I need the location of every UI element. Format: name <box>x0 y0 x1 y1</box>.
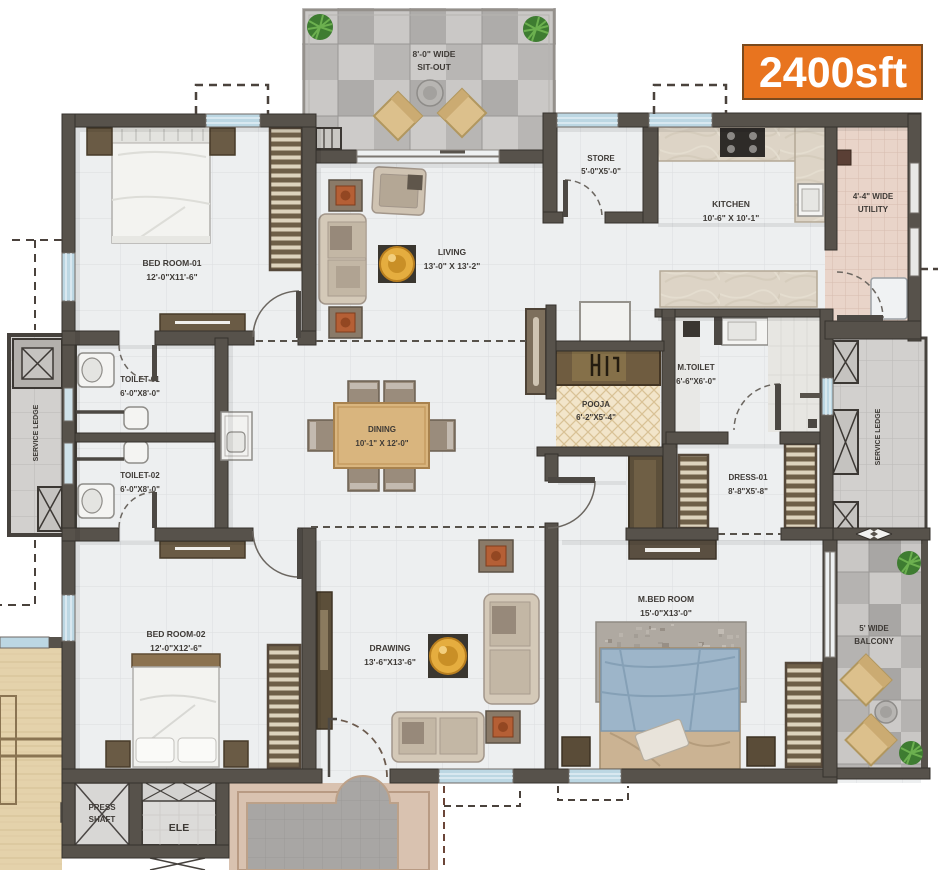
svg-text:DRAWING: DRAWING <box>369 643 410 653</box>
svg-text:M.BED ROOM: M.BED ROOM <box>638 594 694 604</box>
svg-text:13'-6"X13'-6": 13'-6"X13'-6" <box>364 657 416 667</box>
svg-text:LIVING: LIVING <box>438 247 467 257</box>
svg-text:5' WIDE: 5' WIDE <box>859 624 889 633</box>
svg-text:4'-4" WIDE: 4'-4" WIDE <box>853 192 894 201</box>
svg-text:BED ROOM-02: BED ROOM-02 <box>146 629 205 639</box>
svg-text:8'-8"X5'-8": 8'-8"X5'-8" <box>728 487 768 496</box>
svg-text:SERVICE LEDGE: SERVICE LEDGE <box>33 404 40 461</box>
svg-text:POOJA: POOJA <box>582 400 610 409</box>
svg-text:DINING: DINING <box>368 425 396 434</box>
svg-text:ELE: ELE <box>169 822 189 834</box>
svg-text:12'-0"X11'-6": 12'-0"X11'-6" <box>146 272 197 282</box>
svg-text:13'-0" X 13'-2": 13'-0" X 13'-2" <box>424 261 481 271</box>
svg-text:UTILITY: UTILITY <box>858 205 889 214</box>
svg-text:8'-0" WIDE: 8'-0" WIDE <box>413 49 456 59</box>
svg-text:6'-6"X6'-0": 6'-6"X6'-0" <box>676 377 716 386</box>
svg-text:10'-6" X 10'-1": 10'-6" X 10'-1" <box>703 213 760 223</box>
svg-text:6'-2"X5'-4": 6'-2"X5'-4" <box>576 413 616 422</box>
svg-text:2400sft: 2400sft <box>759 49 907 97</box>
svg-text:12'-0"X12'-6": 12'-0"X12'-6" <box>150 643 202 653</box>
svg-text:BED ROOM-01: BED ROOM-01 <box>142 258 201 268</box>
svg-text:15'-0"X13'-0": 15'-0"X13'-0" <box>640 608 692 618</box>
svg-text:PRESS: PRESS <box>88 803 116 812</box>
svg-text:10'-1" X 12'-0": 10'-1" X 12'-0" <box>355 439 408 448</box>
svg-text:BALCONY: BALCONY <box>854 637 894 646</box>
svg-text:SIT-OUT: SIT-OUT <box>417 62 451 72</box>
svg-text:6'-0"X8'-0": 6'-0"X8'-0" <box>120 389 160 398</box>
svg-text:TOILET-02: TOILET-02 <box>120 471 160 480</box>
svg-text:5'-0"X5'-0": 5'-0"X5'-0" <box>581 167 621 176</box>
svg-text:DRESS-01: DRESS-01 <box>728 473 768 482</box>
svg-text:M.TOILET: M.TOILET <box>677 363 714 372</box>
svg-text:STORE: STORE <box>587 154 615 163</box>
svg-text:SERVICE LEDGE: SERVICE LEDGE <box>875 408 882 465</box>
svg-text:SHAFT: SHAFT <box>89 815 116 824</box>
svg-text:KITCHEN: KITCHEN <box>712 199 750 209</box>
